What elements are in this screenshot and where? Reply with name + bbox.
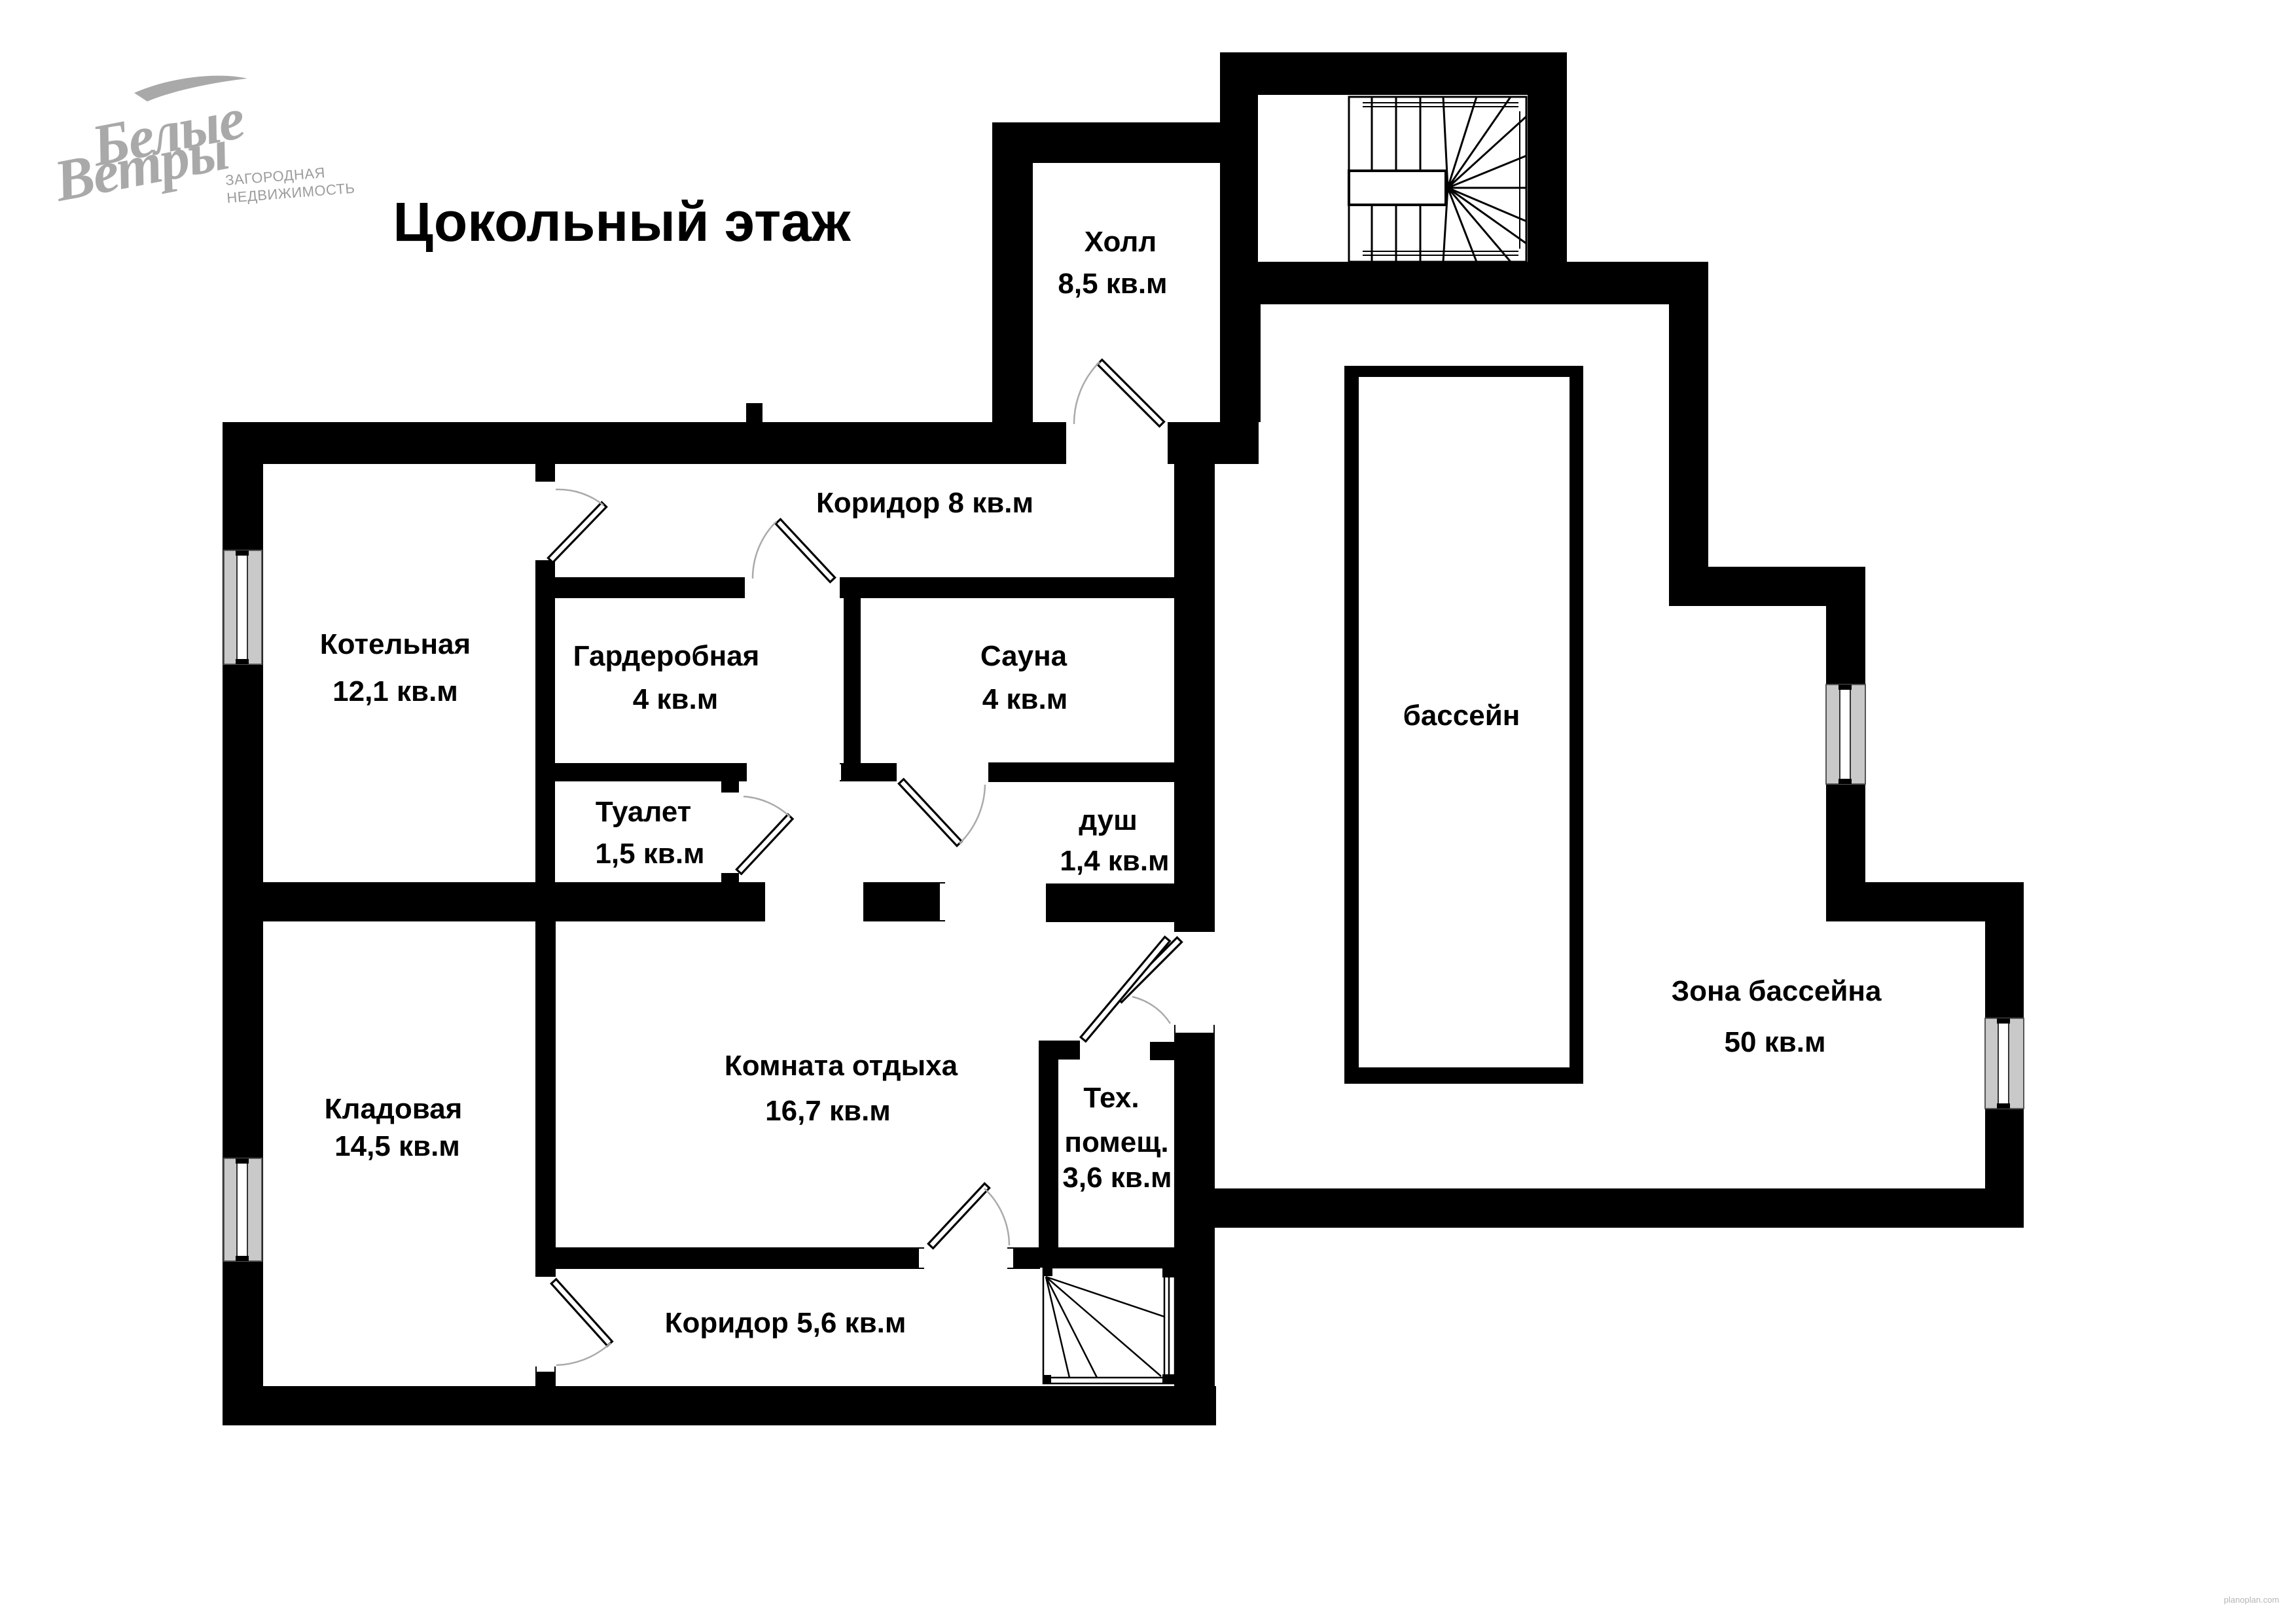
svg-text:Сауна: Сауна <box>980 640 1067 672</box>
svg-text:12,1 кв.м: 12,1 кв.м <box>332 675 458 707</box>
svg-text:8,5 кв.м: 8,5 кв.м <box>1058 268 1167 300</box>
svg-text:Гардеробная: Гардеробная <box>573 640 760 672</box>
svg-text:1,4 кв.м: 1,4 кв.м <box>1060 845 1169 877</box>
svg-text:14,5 кв.м: 14,5 кв.м <box>334 1130 460 1162</box>
svg-text:Комната отдыха: Комната отдыха <box>725 1050 958 1082</box>
svg-text:16,7 кв.м: 16,7 кв.м <box>765 1095 891 1127</box>
svg-text:Зона бассейна: Зона бассейна <box>1672 975 1882 1007</box>
svg-text:Туалет: Туалет <box>596 796 691 828</box>
svg-text:4 кв.м: 4 кв.м <box>633 683 719 715</box>
svg-text:Кладовая: Кладовая <box>325 1093 463 1125</box>
svg-text:50 кв.м: 50 кв.м <box>1724 1026 1825 1058</box>
svg-text:помещ.: помещ. <box>1064 1126 1168 1158</box>
svg-text:Коридор 8 кв.м: Коридор 8 кв.м <box>816 487 1033 519</box>
svg-text:1,5 кв.м: 1,5 кв.м <box>595 838 704 870</box>
svg-text:Котельная: Котельная <box>320 628 471 660</box>
svg-text:Холл: Холл <box>1085 226 1157 258</box>
svg-text:Коридор 5,6 кв.м: Коридор 5,6 кв.м <box>665 1307 906 1339</box>
svg-text:3,6 кв.м: 3,6 кв.м <box>1062 1162 1172 1194</box>
svg-text:душ: душ <box>1079 804 1138 836</box>
svg-text:бассейн: бассейн <box>1403 700 1520 732</box>
svg-text:Цокольный этаж: Цокольный этаж <box>393 191 852 253</box>
svg-text:Тех.: Тех. <box>1083 1082 1139 1114</box>
svg-text:planoplan.com: planoplan.com <box>2224 1595 2280 1605</box>
svg-text:4 кв.м: 4 кв.м <box>982 683 1068 715</box>
